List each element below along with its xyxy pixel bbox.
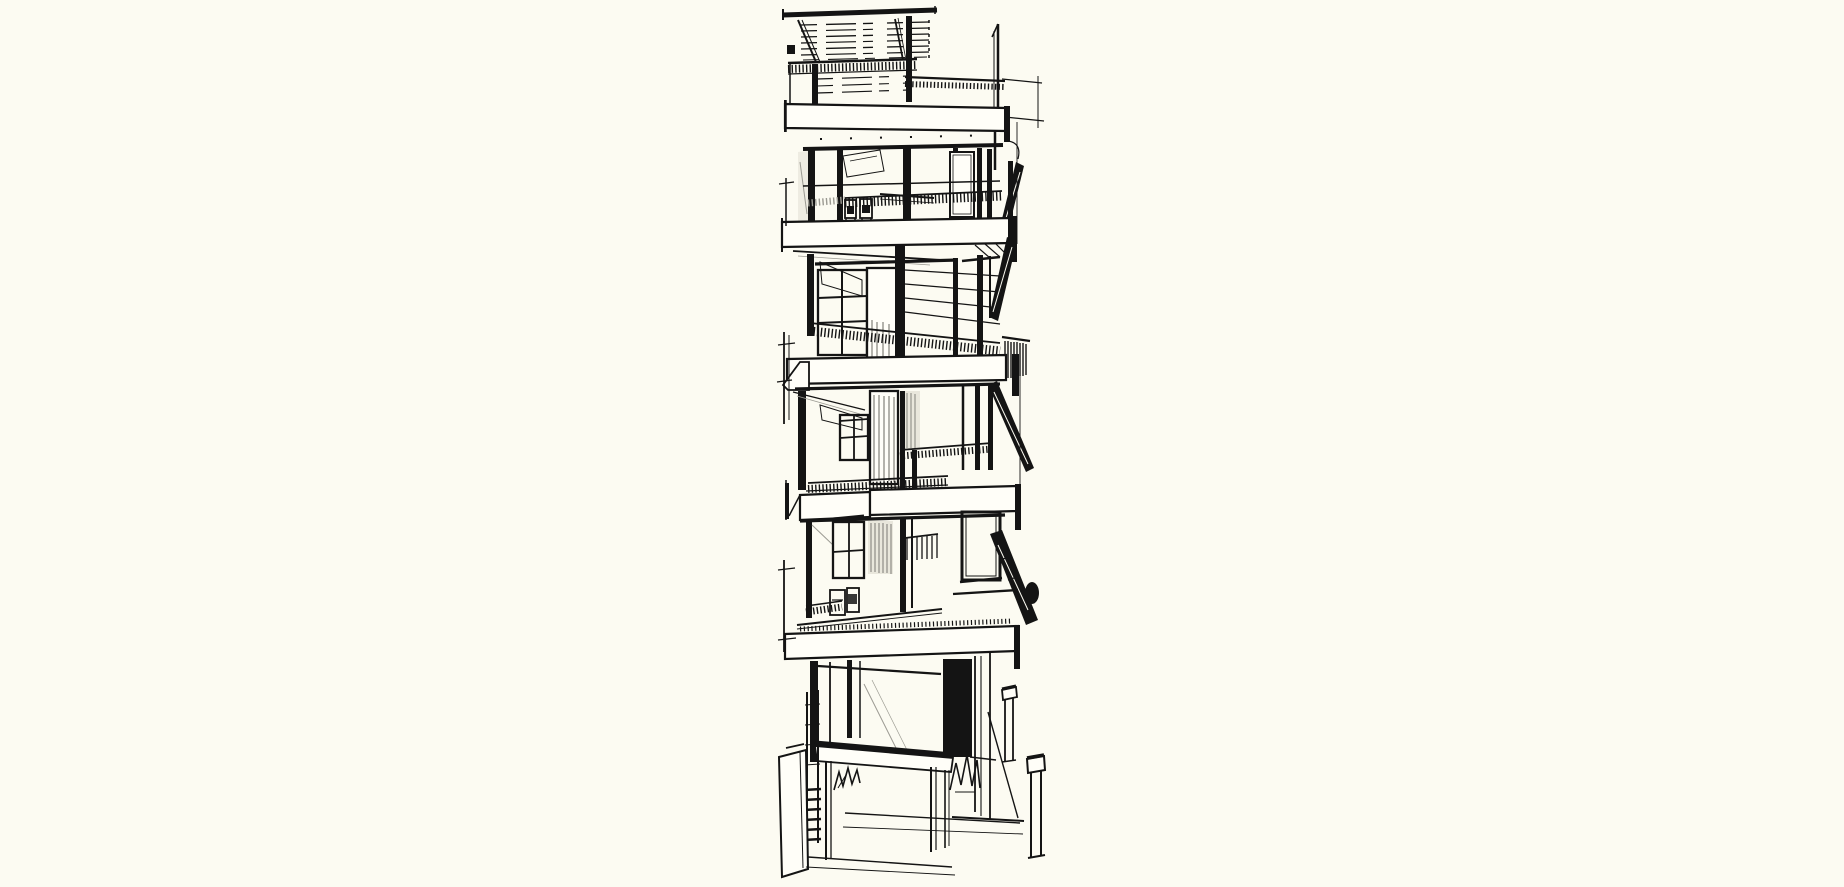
floor-2: [797, 512, 1039, 629]
ground-floor: [779, 652, 1045, 877]
balcony-slab-1: [785, 621, 1020, 669]
entry-doorway: [943, 659, 972, 757]
bollard-2: [1027, 755, 1045, 858]
entrance-canopy: [815, 743, 953, 860]
ground-lines: [806, 813, 1024, 875]
building: [777, 6, 1045, 877]
roof-pergola: [783, 6, 937, 102]
architectural-sketch: Pen-and-ink architectural sketch of a na…: [0, 0, 1844, 887]
leaning-panel: [779, 744, 808, 877]
bollard-1: [1002, 686, 1017, 762]
floor-3: [793, 381, 1034, 492]
balcony-rail-grid-2: [905, 534, 938, 560]
right-frame-members: [970, 652, 1018, 820]
roof-terrace-slab: [785, 100, 1010, 142]
sketch-canvas: Pen-and-ink architectural sketch of a na…: [0, 0, 1844, 887]
